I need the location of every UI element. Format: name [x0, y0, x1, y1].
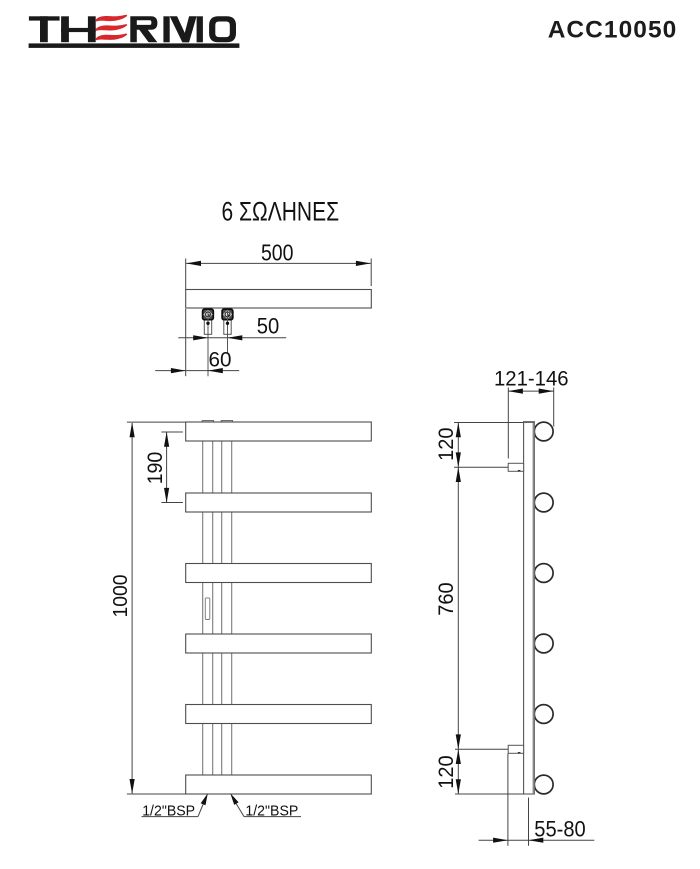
svg-text:50: 50	[257, 314, 280, 339]
svg-text:6 ΣΩΛΗΝΕΣ: 6 ΣΩΛΗΝΕΣ	[221, 197, 339, 227]
svg-text:60: 60	[209, 347, 232, 371]
svg-text:190: 190	[142, 452, 167, 485]
svg-text:1000: 1000	[109, 575, 132, 618]
svg-text:500: 500	[261, 239, 294, 265]
svg-text:ACC10050: ACC10050	[548, 16, 678, 43]
svg-text:760: 760	[434, 582, 458, 616]
svg-text:120: 120	[434, 755, 458, 789]
svg-text:121-146: 121-146	[494, 366, 569, 390]
svg-text:120: 120	[434, 427, 458, 461]
svg-text:55-80: 55-80	[534, 817, 585, 842]
